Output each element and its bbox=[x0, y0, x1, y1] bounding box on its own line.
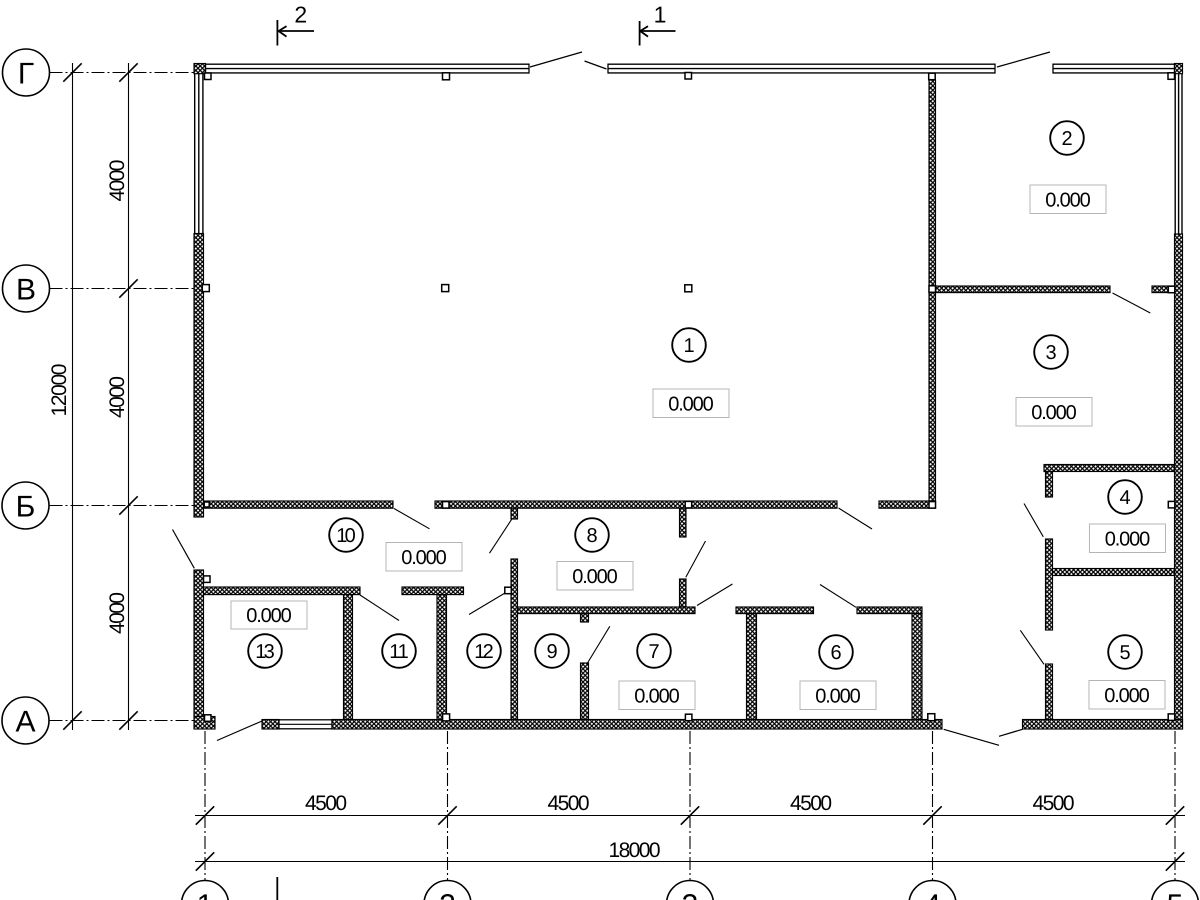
svg-text:4500: 4500 bbox=[548, 792, 590, 815]
svg-text:11: 11 bbox=[389, 641, 409, 663]
svg-text:4000: 4000 bbox=[106, 592, 129, 634]
svg-text:4000: 4000 bbox=[106, 376, 129, 418]
svg-text:Г: Г bbox=[18, 58, 34, 91]
svg-text:1: 1 bbox=[197, 889, 214, 900]
svg-text:18000: 18000 bbox=[609, 839, 661, 862]
svg-text:А: А bbox=[15, 706, 35, 739]
svg-text:0.000: 0.000 bbox=[246, 605, 292, 627]
svg-text:4500: 4500 bbox=[305, 792, 347, 815]
svg-text:4500: 4500 bbox=[1033, 792, 1075, 815]
svg-text:0.000: 0.000 bbox=[1045, 189, 1091, 211]
svg-text:3: 3 bbox=[1045, 342, 1056, 364]
svg-text:4500: 4500 bbox=[790, 792, 832, 815]
svg-text:4: 4 bbox=[1119, 487, 1130, 509]
svg-text:2: 2 bbox=[294, 2, 307, 28]
svg-text:0.000: 0.000 bbox=[1031, 402, 1077, 424]
svg-text:5: 5 bbox=[1119, 642, 1130, 664]
svg-text:12: 12 bbox=[474, 641, 494, 663]
svg-text:6: 6 bbox=[830, 642, 841, 664]
svg-text:1: 1 bbox=[654, 2, 667, 28]
svg-text:В: В bbox=[16, 274, 36, 307]
svg-text:7: 7 bbox=[648, 641, 659, 663]
svg-text:13: 13 bbox=[255, 641, 275, 663]
svg-text:3: 3 bbox=[682, 889, 699, 900]
svg-text:0.000: 0.000 bbox=[1104, 685, 1150, 707]
svg-text:0.000: 0.000 bbox=[1105, 528, 1151, 550]
svg-text:8: 8 bbox=[586, 525, 597, 547]
svg-text:10: 10 bbox=[336, 525, 356, 547]
svg-text:12000: 12000 bbox=[48, 364, 71, 417]
svg-text:5: 5 bbox=[1167, 889, 1184, 900]
svg-text:0.000: 0.000 bbox=[572, 566, 618, 588]
svg-text:1: 1 bbox=[683, 335, 694, 357]
svg-text:4: 4 bbox=[924, 889, 941, 900]
svg-text:Б: Б bbox=[16, 491, 36, 524]
svg-text:2: 2 bbox=[1061, 128, 1072, 150]
svg-text:0.000: 0.000 bbox=[815, 685, 861, 707]
svg-text:4000: 4000 bbox=[106, 160, 129, 202]
svg-text:9: 9 bbox=[546, 641, 557, 663]
svg-text:0.000: 0.000 bbox=[401, 547, 447, 569]
svg-text:2: 2 bbox=[439, 889, 456, 900]
svg-text:0.000: 0.000 bbox=[634, 685, 680, 707]
svg-text:0.000: 0.000 bbox=[668, 393, 714, 415]
